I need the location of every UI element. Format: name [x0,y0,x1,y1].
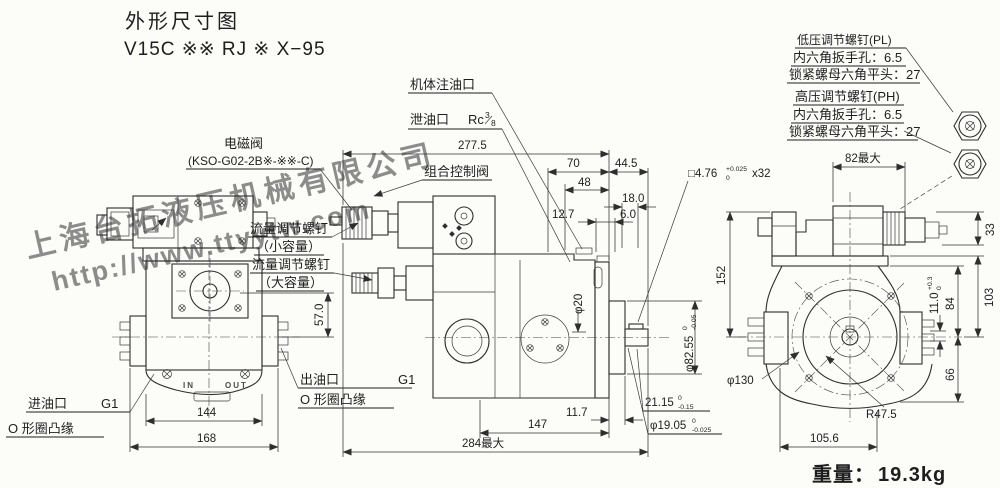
dim-boss-step-tol-bot: 0 [936,286,943,290]
dim-284-text: 284最大 [462,436,505,450]
dimension-drawing-page: 外形尺寸图 V15C ※※ RJ ※ X−95 上海台拓液压机械有限公司 htt… [0,0,1000,488]
high-pressure-hex-label: 内六角扳手孔：6.5 [793,107,902,122]
flow-screw-small-label2: （小容量） [256,239,321,254]
dim-boss-step-main: 11.0 [929,292,941,314]
dim-18-text: 18.0 [622,193,644,205]
dim-spigot-tol-bot: -0.05 [691,314,698,330]
weight-label: 重量： [812,463,875,486]
low-pressure-hex-label: 内六角扳手孔：6.5 [793,50,902,65]
dim-shaft-boss: φ20 [572,294,586,332]
dim-82max-text: 82最大 [845,151,881,165]
high-pressure-nut-label: 锁紧螺母六角平头：27 [789,124,920,139]
dim-spigot-main: φ82.55 [684,336,696,372]
dim-6-text: 6.0 [620,209,636,221]
dim-shaft-dia-tol-bot: -0.025 [692,427,711,434]
dim-r-body: R47.5 [826,356,897,421]
dim-66: 66 [900,337,964,402]
flow-screw-large-label2: （大容量） [258,275,323,290]
outlet-size: G1 [398,372,415,387]
pump-side-body-shape [425,248,672,398]
dim-103-text: 103 [984,288,996,307]
outlet-flange-label: O 形圈凸缘 [300,392,366,407]
dim-103: 103 [890,256,996,337]
high-pressure-label: 高压调节螺钉(PH) [795,89,900,104]
page-title: 外形尺寸图 [125,10,240,33]
dim-48-text: 48 [578,177,591,189]
body-fill-port-label: 机体注油口 [410,77,475,92]
solenoid-valve-label: 电磁阀 [224,136,263,151]
outline-dimension-drawing: 外形尺寸图 V15C ※※ RJ ※ X−95 上海台拓液压机械有限公司 htt… [0,0,1000,488]
inlet-port-callout: 进油口 G1 O 形圈凸缘 [6,374,154,437]
rear-view-drawing: 82最大 152 33 103 84 66 [716,151,997,452]
dim-spigot-tol-top: 0 [682,326,689,330]
dim-84-text: 84 [945,297,957,310]
dim-key-tol-top: +0.025 [726,166,747,173]
dim-82max: 82最大 [833,151,905,214]
flow-screw-large-shape [352,266,433,300]
dim-boss-step: 11.0 +0.3 0 [927,276,946,357]
title-block: 外形尺寸图 V15C ※※ RJ ※ X−95 [124,10,326,60]
inlet-size: G1 [101,396,118,411]
solenoid-model-label: (KSO-G02-2B※-※※-C) [188,154,314,168]
dim-144-text: 144 [197,407,217,419]
low-pressure-nut-label: 锁紧螺母六角平头：27 [789,67,920,82]
dim-12-7-text: 12.7 [552,209,574,221]
outlet-label: 出油口 [300,372,339,387]
drain-thread-base: Rc [468,112,484,127]
dim-168-text: 168 [197,433,216,445]
flow-screw-large-label1: 流量调节螺钉 [252,257,330,272]
dim-key: □4.76 +0.025 0 x32 [638,166,771,322]
dim-147: 147 [480,400,609,438]
pressure-screw-callouts: 低压调节螺钉(PL) 内六角扳手孔：6.5 锁紧螺母六角平头：27 高压调节螺钉… [787,33,986,209]
dim-key-flat-tol-top: 0 [678,395,682,402]
drain-thread-denominator: 8 [491,118,496,128]
dim-33-text: 33 [985,223,997,236]
dim-70: 70 [548,158,609,252]
dim-key-suffix: x32 [752,168,771,180]
dim-key-flat-tol-bot: -0.15 [678,404,694,411]
dim-152-text: 152 [716,266,728,285]
weight-note: 重量： 19.3kg [812,463,946,486]
dim-key-main: □4.76 [688,168,717,180]
dim-33: 33 [936,212,997,245]
dim-shaft-dia: φ19.05 0 -0.025 [628,348,722,434]
dim-147-text: 147 [528,419,547,431]
dim-key-flat-main: 21.15 [645,397,674,409]
dim-11-7: 11.7 [566,376,643,438]
dim-57-text: 57.0 [314,304,326,326]
inlet-flange-label: O 形圈凸缘 [8,421,74,436]
rear-valve-assembly-shape [758,206,947,256]
drain-port-label: 泄油口 [410,112,449,127]
dim-70-text: 70 [567,158,580,170]
dim-11-7-text: 11.7 [566,407,588,419]
dim-66-text: 66 [945,368,957,381]
high-pressure-screw-callout: 高压调节螺钉(PH) 内六角扳手孔：6.5 锁紧螺母六角平头：27 [787,89,951,153]
dim-key-tol-bot: 0 [726,175,730,182]
dim-r-body-text: R47.5 [866,409,897,421]
model-code: V15C ※※ RJ ※ X−95 [124,39,326,60]
outlet-port-callout: 出油口 G1 O 形圈凸缘 [281,348,415,408]
side-view-drawing: 电磁阀 (KSO-G02-2B※-※※-C) 机体注油口 泄油口 Rc 3 8 … [186,77,771,457]
dim-57: 57.0 [240,293,334,337]
drain-thread-numerator: 3 [485,110,490,120]
dim-44-5-text: 44.5 [615,158,637,170]
dim-105-6: 105.6 [780,368,877,452]
dim-105-6-text: 105.6 [810,433,839,445]
cast-in-text: IN [183,381,195,390]
flow-screw-small-label1: 流量调节螺钉 [250,221,328,236]
dim-277-5-text: 277.5 [458,140,487,152]
weight-value: 19.3kg [878,464,946,486]
dim-shaft-dia-tol-top: 0 [692,418,696,425]
inlet-label: 进油口 [28,396,67,411]
dim-shaft-boss-text: φ20 [573,294,585,314]
combined-control-valve-label: 组合控制阀 [424,164,489,179]
dim-mount-dia-text: φ130 [727,375,754,387]
low-pressure-label: 低压调节螺钉(PL) [797,33,892,47]
cast-out-text: OUT [225,381,248,390]
dim-12-7: 12.7 6.0 [552,209,636,252]
dim-144: 144 [146,394,262,426]
dim-shaft-dia-main: φ19.05 [650,420,686,432]
flow-screw-large-callout: 流量调节螺钉 （大容量） [250,257,372,291]
dim-boss-step-tol-top: +0.3 [927,276,934,290]
